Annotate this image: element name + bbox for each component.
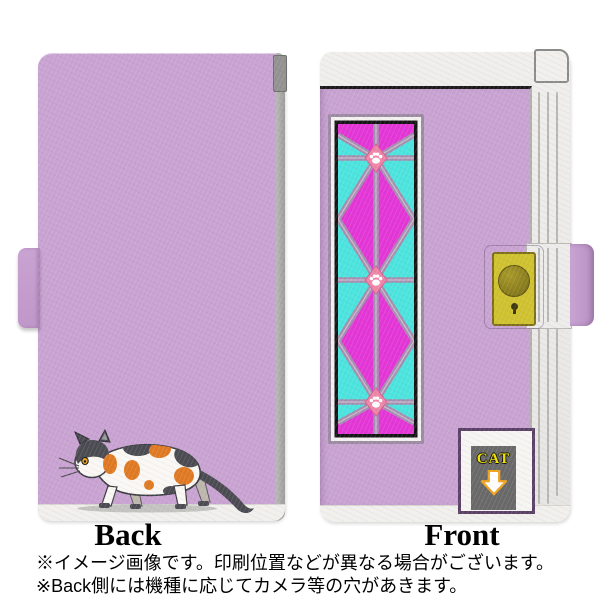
back-clasp-edge-tab [273, 55, 287, 92]
calico-cat-icon [58, 428, 258, 520]
disclaimer-note-2: ※Back側には機種に応じてカメラ等の穴があきます。 [36, 575, 596, 597]
cat-badge-frame: CAT [458, 428, 535, 514]
cat-badge: CAT [471, 446, 516, 510]
stained-glass-paw-panel [328, 114, 424, 444]
strap-ridge [556, 248, 558, 322]
magnetic-clasp-button [492, 252, 536, 326]
front-view-label: Front [362, 518, 562, 552]
down-arrow-icon [480, 470, 508, 496]
phone-case-front-view: CAT [320, 52, 570, 522]
product-image: CAT Back Front ※イメージ画像です。印刷位置などが異なる場合がござ… [0, 0, 600, 600]
phone-case-back-view [38, 53, 285, 521]
back-magnetic-flap-tab [18, 248, 40, 328]
clasp-strap-end [570, 244, 594, 326]
back-spine-edge [276, 53, 285, 521]
strap-ridge [547, 248, 549, 322]
disclaimer-note-1: ※イメージ画像です。印刷位置などが異なる場合がございます。 [36, 552, 596, 574]
keyhole-icon [511, 303, 518, 310]
clasp-top-end [534, 49, 569, 83]
back-view-label: Back [28, 518, 228, 552]
cat-badge-label: CAT [471, 451, 516, 468]
magnet-circle-icon [498, 265, 530, 297]
